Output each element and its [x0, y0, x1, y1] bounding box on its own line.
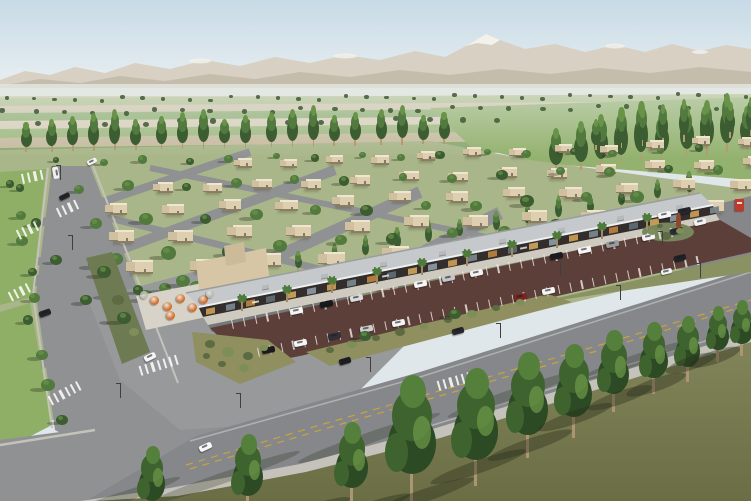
villa-door — [593, 242, 595, 245]
villa-annex — [738, 139, 744, 146]
tree-highlight — [449, 175, 454, 179]
tree-foliage — [219, 127, 230, 144]
villa-door — [315, 185, 317, 188]
storefront-sign — [520, 246, 527, 249]
storefront-window — [488, 251, 497, 258]
villa-door — [120, 210, 122, 213]
tree-highlight — [362, 206, 368, 211]
palm-frond — [508, 239, 515, 249]
tree-foliage — [746, 108, 751, 130]
tree-foliage — [22, 125, 30, 138]
shrub — [372, 335, 380, 341]
car-windshield — [292, 308, 299, 312]
far-tree — [628, 95, 632, 99]
round-tree — [581, 192, 592, 202]
crosswalk-bar — [67, 202, 73, 212]
stall-line — [615, 273, 618, 282]
villa-door — [291, 207, 293, 210]
tree-foliage — [465, 368, 489, 399]
villa-roof-ridge — [292, 225, 311, 227]
tree-trunk — [558, 213, 560, 221]
internal-streets — [0, 152, 540, 398]
tree-foliage — [643, 331, 666, 360]
tree-foliage — [222, 119, 227, 126]
car — [694, 218, 707, 226]
villa-door — [708, 166, 710, 169]
stall-line — [373, 324, 376, 333]
palm-frond — [552, 232, 562, 239]
tree-shadow — [42, 262, 55, 265]
rooftop-unit — [321, 273, 328, 278]
tree-highlight — [360, 153, 363, 155]
tree-shadow — [121, 350, 137, 354]
tree-highlight — [252, 210, 258, 215]
villa-roof-ridge — [324, 252, 345, 254]
crosswalk-bar — [39, 170, 43, 180]
villa-roof-ridge — [453, 172, 468, 174]
car-windshield — [676, 255, 682, 259]
villa-house — [196, 259, 217, 273]
verge-green — [0, 303, 52, 452]
tree-foliage — [141, 454, 163, 482]
yellow-center-line — [186, 300, 751, 465]
road-edge-line — [190, 272, 751, 441]
stall-line — [497, 264, 500, 273]
tree-foliage — [620, 187, 623, 192]
villa-roof-ridge — [601, 164, 616, 166]
tree-foliage — [508, 384, 548, 435]
round-tree — [664, 165, 673, 173]
tree-foliage — [679, 111, 689, 135]
stall-line — [523, 292, 526, 301]
round-tree — [470, 201, 482, 212]
palm-frond — [462, 250, 472, 257]
villa-roof-ridge — [233, 225, 252, 227]
villa-annex — [596, 165, 603, 172]
tree-shadow — [213, 254, 228, 257]
tree-shadow — [392, 179, 402, 181]
villa-annex — [673, 180, 681, 188]
poplar-tree — [240, 115, 251, 147]
round-tree — [80, 295, 92, 306]
palm-frond — [417, 259, 427, 266]
aerial-render-scene — [0, 0, 751, 501]
foreground-poplar-tree — [639, 322, 669, 394]
car-windshield — [544, 288, 551, 292]
residential-layer — [0, 0, 751, 501]
crosswalk-bar — [437, 381, 442, 391]
tree-trunk — [526, 428, 529, 458]
grass-shadow-stripe — [36, 472, 181, 501]
tree-foliage — [640, 109, 645, 118]
villa-annex — [350, 177, 357, 184]
villa-door — [390, 287, 392, 290]
villa-roof-ridge — [517, 239, 538, 241]
far-tree — [452, 93, 456, 97]
tree-foliage — [180, 112, 185, 121]
plaza — [88, 262, 420, 430]
tree-shadow — [20, 300, 33, 303]
crosswalk-bar — [139, 366, 144, 376]
tree-foliage — [451, 422, 472, 457]
palm-frond — [462, 250, 472, 257]
round-tree — [28, 268, 38, 277]
villa-roof-ridge — [355, 175, 370, 177]
palm-frond — [552, 234, 562, 237]
round-tree — [496, 170, 508, 180]
street — [140, 213, 500, 398]
stall-line — [416, 281, 419, 290]
tree-trunk — [662, 131, 664, 144]
snow-cap — [333, 54, 357, 59]
shrub — [347, 340, 357, 348]
stall-line — [462, 271, 465, 280]
villa-roof-ridge — [581, 233, 602, 235]
crosswalk-bar — [32, 221, 38, 231]
far-tree — [344, 94, 348, 98]
villa-annex — [463, 149, 469, 156]
poplar-tree — [614, 107, 628, 164]
villa-door — [364, 181, 366, 184]
tree-foliage — [594, 129, 608, 159]
tree-highlight — [115, 312, 122, 318]
crosswalk-bar — [27, 224, 33, 234]
tree-highlight — [90, 260, 95, 264]
light-pole — [662, 231, 663, 246]
tree-trunk — [621, 202, 623, 209]
villa-door — [465, 249, 467, 252]
car-windshield — [552, 253, 559, 257]
tree-shadow — [572, 199, 586, 202]
villa-roof-ridge — [351, 220, 370, 222]
round-tree — [6, 180, 15, 188]
round-tree — [695, 144, 703, 151]
tree-shadow — [596, 175, 609, 178]
villa-door — [473, 280, 475, 283]
villa-roof-ridge — [513, 148, 527, 150]
tree-trunk — [746, 136, 748, 150]
tree-foliage — [69, 119, 77, 135]
far-tree — [124, 111, 129, 115]
tree-highlight — [100, 267, 106, 272]
tree-shadow — [331, 183, 344, 186]
villa-house — [293, 290, 315, 304]
canopy-front-edge — [199, 205, 713, 307]
car — [660, 267, 672, 275]
shrub — [395, 328, 405, 336]
tree-foliage — [159, 116, 164, 124]
palm-frond — [507, 241, 517, 248]
round-tree — [549, 219, 564, 232]
villa-door — [348, 202, 350, 205]
storefront-window — [347, 279, 356, 286]
car — [513, 293, 527, 302]
tree-foliage — [388, 413, 436, 474]
round-tree — [53, 157, 60, 163]
tree-foliage — [639, 355, 652, 377]
tree-foliage — [266, 122, 277, 142]
villa-roof-ridge — [132, 260, 153, 262]
far-tree — [318, 120, 324, 125]
tree-foliage — [682, 99, 687, 110]
tree-shadow — [47, 422, 61, 425]
round-tree — [556, 167, 566, 176]
crosswalk — [48, 381, 82, 405]
car — [541, 287, 555, 296]
villa-annex — [153, 184, 160, 191]
mountain-range-far — [0, 34, 751, 95]
villa-annex — [204, 300, 214, 310]
storefront-window — [589, 230, 598, 237]
stall-line — [569, 283, 572, 292]
crosswalk-bar — [70, 384, 77, 394]
tree-foliage — [376, 119, 387, 140]
tree-foliage — [112, 109, 117, 119]
villa-roof-ridge — [528, 210, 547, 212]
far-tree — [210, 118, 216, 123]
palm-crown — [461, 249, 473, 257]
tree-trunk — [25, 143, 27, 152]
villa-roof-ridge — [467, 147, 481, 149]
villa-roof-ridge — [110, 203, 127, 205]
tree-foliage-highlight — [718, 324, 726, 339]
tree-highlight — [666, 166, 670, 169]
tree-foliage — [339, 432, 366, 466]
stall-line — [603, 275, 606, 284]
villa-door — [216, 189, 218, 192]
villa-roof-ridge — [389, 246, 410, 248]
stall-line — [624, 238, 627, 247]
round-tree — [41, 379, 55, 391]
stall-line — [335, 298, 338, 307]
villa-door — [429, 156, 431, 159]
palm-frond — [282, 288, 292, 291]
stall-line — [381, 288, 384, 297]
villa-annex — [254, 255, 263, 265]
tree-foliage — [290, 109, 295, 119]
villa-door — [413, 177, 415, 180]
tree-highlight — [92, 219, 97, 223]
villa-annex — [743, 158, 750, 165]
tree-trunk — [245, 137, 247, 147]
palm-frond — [597, 223, 607, 230]
car-windshield — [663, 269, 669, 273]
villa-door — [273, 262, 275, 265]
car — [327, 332, 341, 341]
stall-line — [323, 300, 326, 309]
far-tree — [35, 121, 41, 126]
villa-door — [613, 150, 615, 153]
far-tree — [412, 97, 416, 101]
car — [605, 240, 619, 249]
palm-frond — [373, 266, 380, 276]
villa-roof-ridge — [559, 144, 573, 146]
far-tree — [161, 97, 165, 101]
tree-foliage — [656, 118, 667, 138]
palm-frond — [642, 216, 652, 219]
tree-foliage-highlight — [689, 337, 698, 354]
round-tree — [657, 148, 664, 154]
tree-shadow — [565, 153, 574, 155]
villa-roof-ridge — [696, 136, 710, 138]
crosswalk-bar — [460, 374, 465, 384]
crosswalk-bar — [466, 372, 471, 382]
car — [359, 325, 373, 334]
tree-highlight — [633, 192, 639, 197]
villa-annex — [280, 160, 286, 167]
tree-foliage — [511, 365, 545, 407]
villa-annex — [332, 197, 340, 205]
tree-trunk — [729, 127, 731, 138]
car-windshield — [644, 234, 651, 238]
tree-highlight — [33, 220, 38, 224]
tree-foliage — [618, 117, 626, 132]
foreground-poplar-tree — [137, 446, 166, 501]
round-tree — [421, 201, 431, 210]
round-tree — [604, 167, 615, 177]
stall-line — [465, 304, 468, 313]
tree-shadow — [354, 157, 362, 159]
tree-highlight — [139, 156, 143, 159]
palm-frond — [643, 212, 650, 222]
villa-house — [451, 191, 468, 203]
stall-line — [476, 302, 479, 311]
tree-foliage — [441, 112, 446, 120]
tree-foliage — [655, 126, 669, 152]
tree-foliage — [111, 113, 119, 131]
stall-line — [580, 280, 583, 289]
tree-highlight — [52, 256, 57, 260]
tree-shadow — [487, 177, 501, 180]
tree-shadow — [86, 275, 103, 279]
tree-foliage — [70, 116, 75, 125]
tree-foliage-highlight — [742, 318, 750, 333]
shrub — [112, 295, 124, 305]
poplar-tree — [680, 107, 694, 158]
light-pole-arm — [116, 383, 121, 384]
tree-trunk — [401, 132, 403, 145]
villa-roof-ridge — [551, 168, 566, 170]
car-windshield — [60, 193, 66, 197]
midground-trees-layer — [0, 0, 751, 501]
tree-foliage — [178, 116, 186, 132]
tree-trunk — [459, 233, 461, 240]
tree-shadow — [0, 186, 9, 188]
snow-cap — [692, 50, 708, 54]
tree-foliage — [619, 189, 624, 199]
tree-foliage — [680, 121, 694, 149]
villa-door — [421, 223, 423, 226]
round-tree — [273, 153, 280, 159]
villa-house — [233, 225, 252, 238]
villa-annex — [190, 261, 199, 271]
tree-foliage — [661, 104, 666, 114]
palm-trunk — [646, 218, 648, 230]
car — [261, 346, 275, 355]
villa-door — [521, 153, 523, 156]
tree-shadow — [657, 170, 668, 172]
tree-foliage — [638, 101, 644, 116]
tree-trunk — [740, 340, 743, 356]
villa-house — [705, 200, 724, 213]
round-tree — [386, 233, 400, 245]
far-tree — [0, 108, 5, 112]
stall-line — [315, 336, 318, 345]
stall-line — [396, 319, 399, 328]
round-tree — [713, 165, 724, 174]
tree-foliage — [722, 98, 733, 124]
tree-foliage — [686, 173, 691, 184]
poplar-tree — [418, 115, 429, 145]
car — [58, 191, 70, 200]
villa-roof-ridge — [158, 182, 173, 184]
round-tree — [359, 331, 371, 342]
car-windshield — [146, 354, 153, 359]
light-pole-arm — [556, 261, 561, 262]
tree-highlight — [361, 332, 366, 336]
rooftop-unit — [262, 284, 269, 289]
villa-annex — [389, 193, 397, 201]
poplar-tree — [376, 109, 387, 146]
stall-line — [407, 316, 410, 325]
tree-foliage — [674, 346, 686, 366]
tree-foliage — [686, 178, 693, 192]
palm-frond — [237, 297, 247, 300]
tree-foliage — [493, 213, 498, 223]
far-tree — [656, 96, 660, 100]
tree-trunk — [313, 133, 315, 146]
tree-highlight — [58, 416, 63, 420]
round-tree — [498, 226, 511, 238]
stall-line — [338, 331, 341, 340]
palm-frond — [418, 257, 425, 267]
stall-line — [419, 314, 422, 323]
villa-house — [699, 160, 714, 171]
tree-trunk — [72, 140, 74, 151]
villa-house — [256, 179, 271, 190]
foreground-svg — [0, 0, 751, 501]
palm-crown — [506, 240, 518, 248]
tree-foliage — [706, 332, 716, 349]
tree-foliage — [596, 119, 607, 142]
crosswalk-bar — [33, 171, 37, 181]
round-tree — [520, 195, 534, 207]
tree-trunk — [686, 141, 688, 157]
tree-foliage-highlight — [655, 345, 665, 364]
villa-annex — [370, 280, 380, 290]
far-tree — [256, 95, 260, 99]
cafe-umbrella — [199, 295, 208, 304]
poplar-tree — [634, 101, 648, 163]
villa-annex — [600, 146, 606, 153]
tree-shadow — [93, 164, 103, 166]
tree-trunk — [661, 145, 663, 160]
rooftop-unit — [439, 250, 446, 255]
palm-frond — [327, 279, 337, 282]
villa-house — [735, 179, 751, 191]
stall-line — [257, 348, 260, 357]
tree-shadow — [7, 243, 21, 246]
poplar-tree — [740, 106, 751, 150]
villa-door — [475, 152, 477, 155]
round-tree — [56, 415, 67, 425]
far-tree — [415, 109, 420, 113]
villa-house — [742, 137, 751, 147]
tree-highlight — [202, 215, 207, 219]
villa-house — [453, 240, 474, 254]
far-tree — [500, 95, 504, 99]
villa-annex — [645, 161, 652, 168]
